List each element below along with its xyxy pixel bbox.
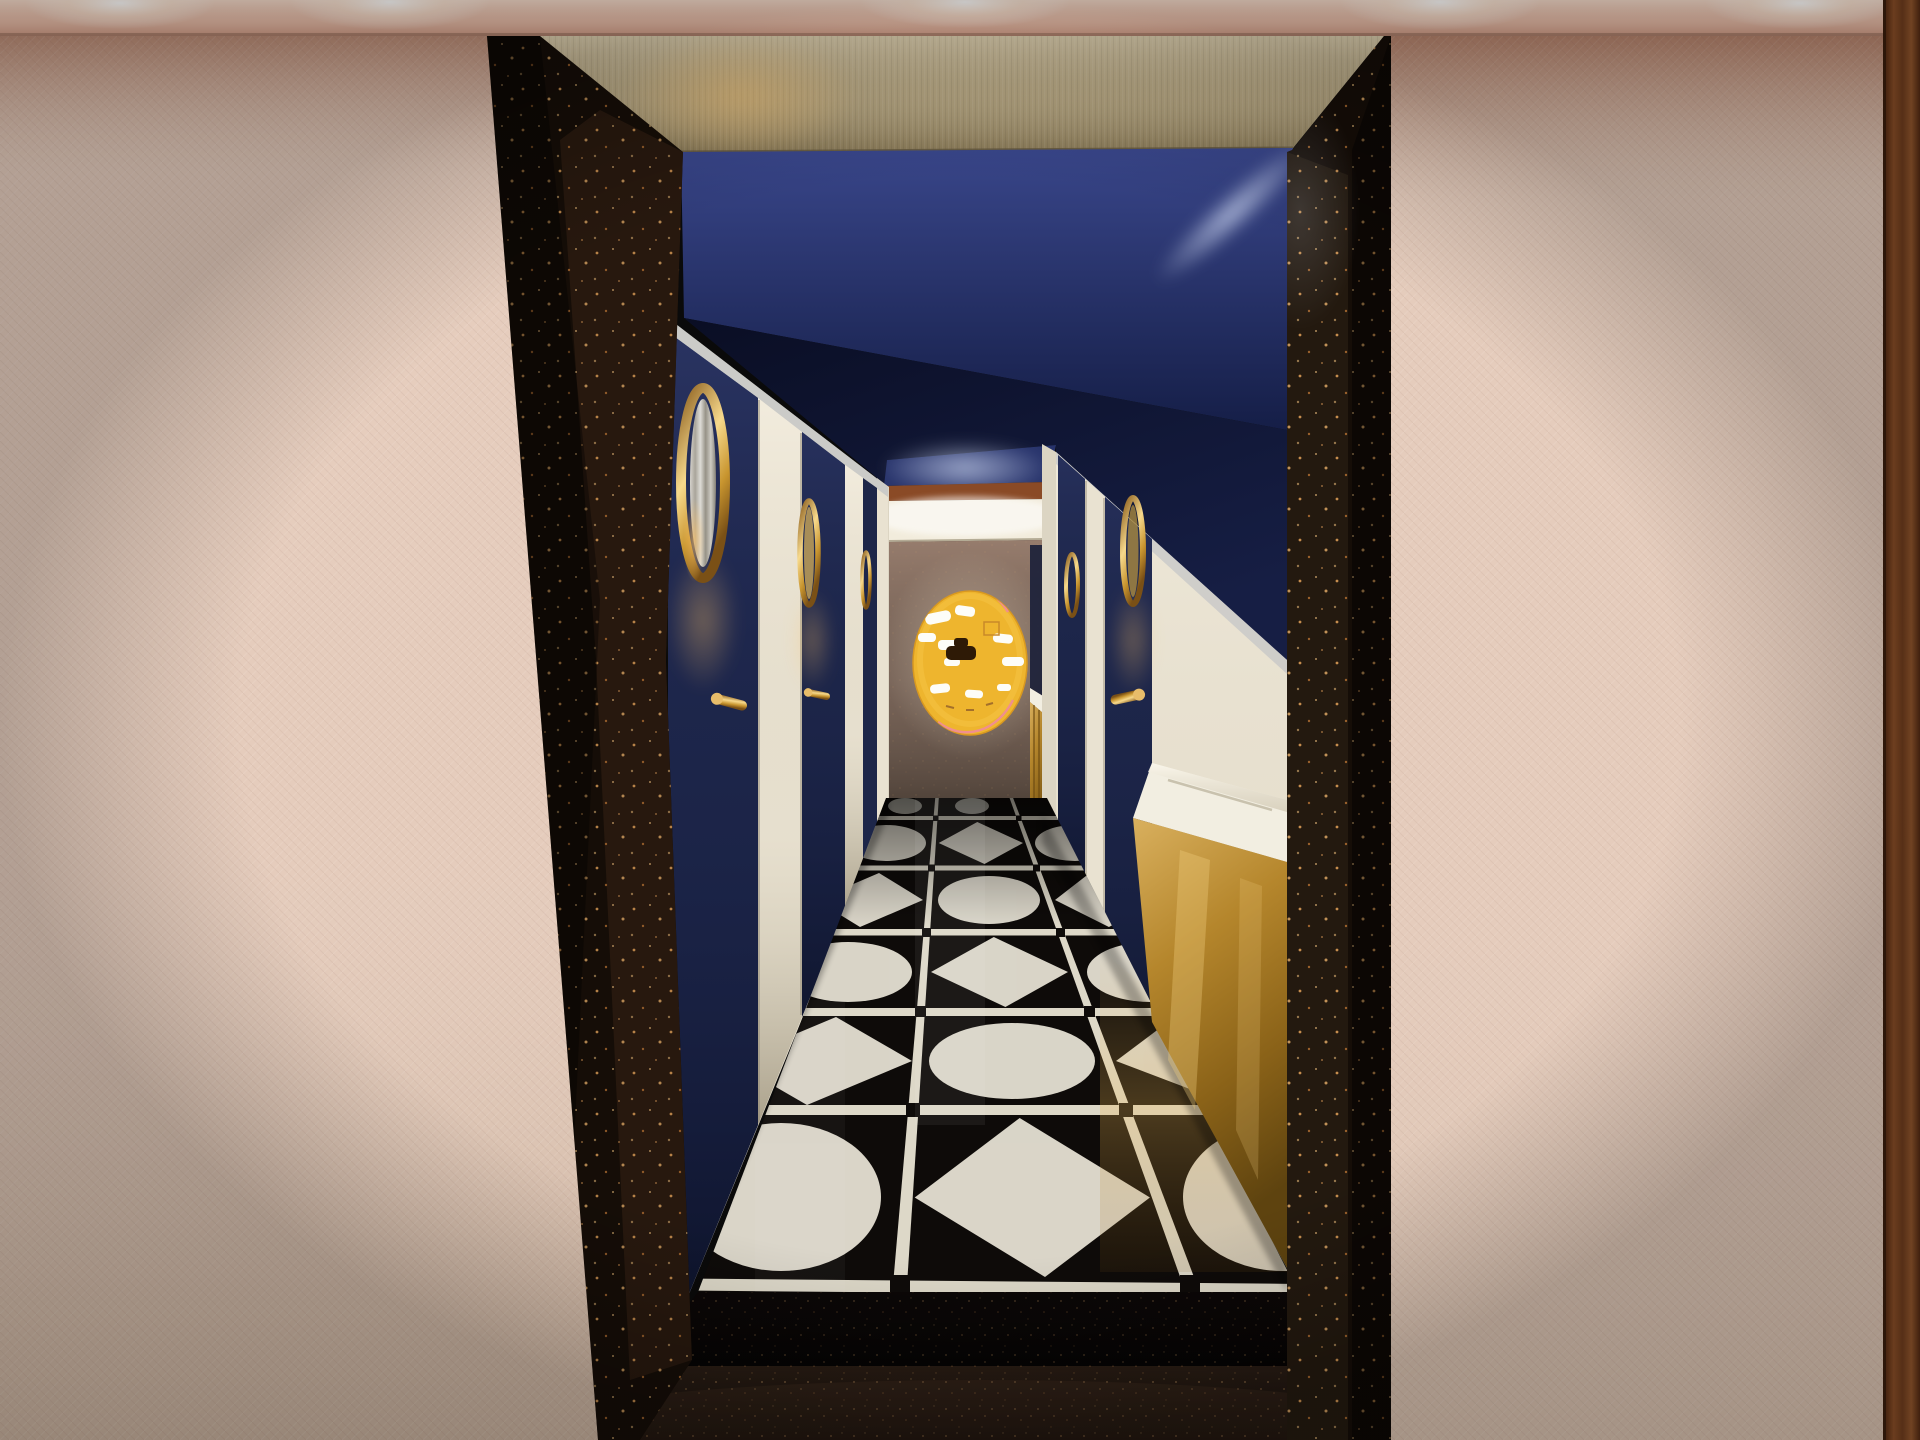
vignette [0,0,1920,1440]
corridor-render [0,0,1920,1440]
